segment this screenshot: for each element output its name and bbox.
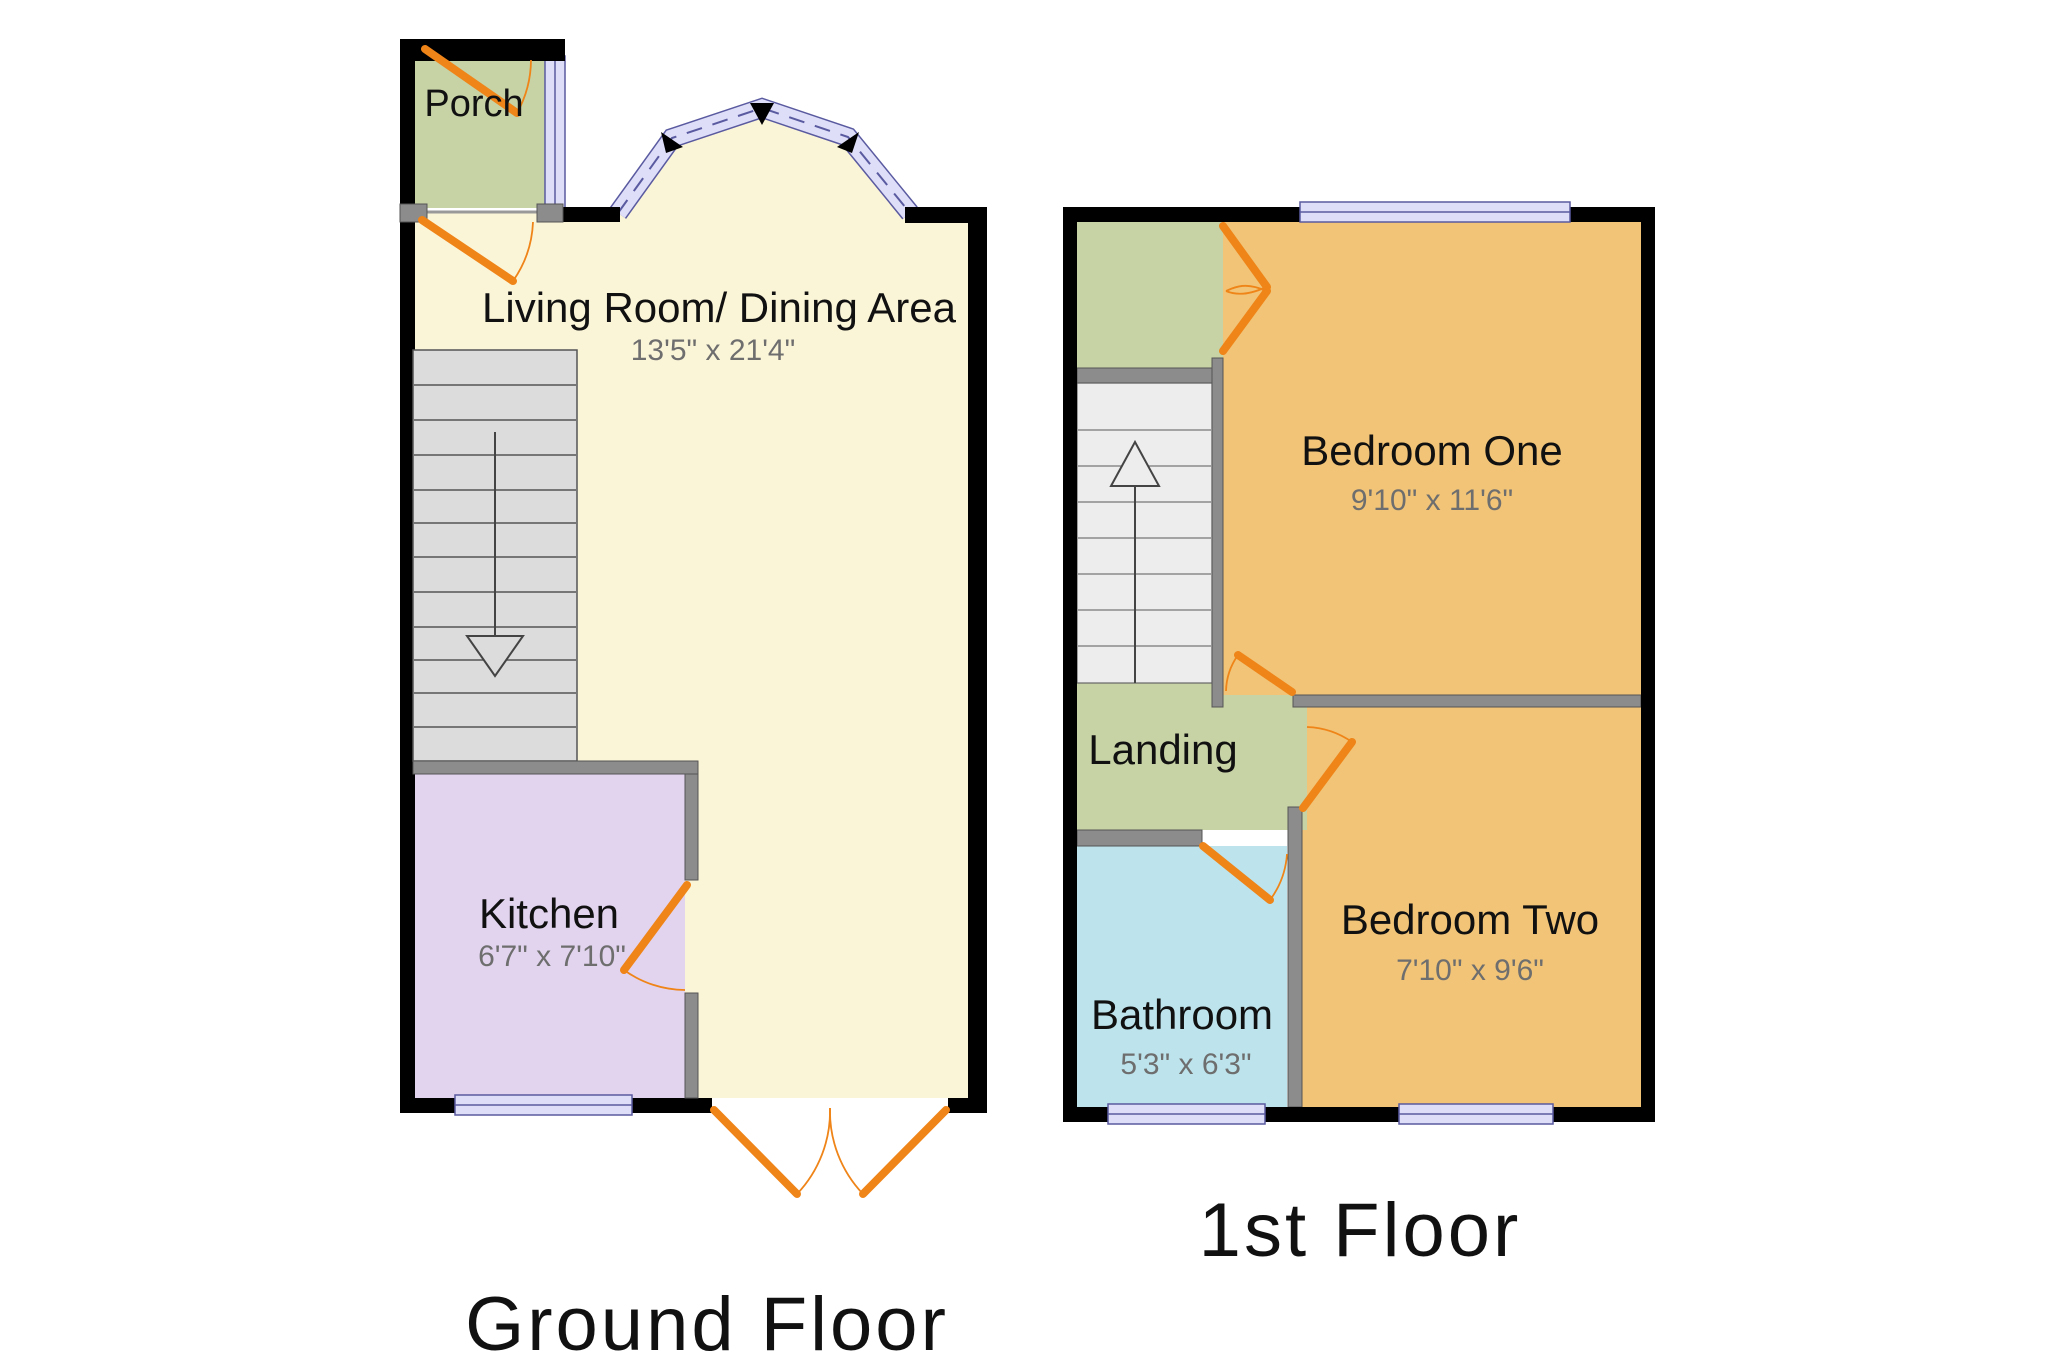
french-doors	[714, 1108, 946, 1194]
room-porch	[415, 56, 545, 208]
wall-right	[968, 207, 987, 1113]
wall-top	[1063, 207, 1300, 222]
first-floor-plan: Bedroom One 9'10" x 11'6" Bedroom Two 7'…	[1063, 202, 1655, 1273]
kitchen-top-wall	[413, 761, 698, 774]
porch-window	[545, 56, 565, 208]
kitchen-right-wall	[685, 774, 698, 880]
bedroom-two-window	[1399, 1104, 1553, 1124]
kitchen-window	[455, 1095, 632, 1115]
wall-left	[1063, 207, 1077, 1122]
bathroom-window	[1108, 1104, 1265, 1124]
kitchen-dimensions: 6'7" x 7'10"	[478, 940, 626, 973]
wall-right	[1641, 207, 1655, 1122]
stairs-ground	[413, 350, 577, 761]
wall-bottom	[1063, 1107, 1108, 1122]
stairs-first	[1077, 383, 1212, 683]
landing-bathroom-wall	[1077, 830, 1202, 846]
bathroom-dimensions: 5'3" x 6'3"	[1120, 1048, 1251, 1081]
kitchen-label: Kitchen	[479, 890, 619, 937]
bedroom-divider-wall	[1293, 695, 1641, 707]
living-room-dimensions: 13'5" x 21'4"	[631, 334, 796, 367]
bedroom-one-dimensions: 9'10" x 11'6"	[1351, 484, 1513, 517]
wall-bottom	[948, 1098, 987, 1113]
wall-top-left-of-bay	[560, 207, 620, 222]
kitchen-right-wall	[685, 993, 698, 1098]
bedroom-two-label: Bedroom Two	[1341, 896, 1599, 943]
stairs-side-wall	[1212, 358, 1223, 707]
closet-area	[1077, 222, 1223, 368]
living-room-label: Living Room/ Dining Area	[482, 284, 957, 331]
bedroom-two-dimensions: 7'10" x 9'6"	[1396, 954, 1544, 987]
ground-floor-plan: Porch Living Room/ Dining Area 13'5" x 2…	[400, 39, 987, 1364]
wall-bottom	[400, 1098, 455, 1113]
bedroom-one-label: Bedroom One	[1301, 427, 1562, 474]
first-floor-caption: 1st Floor	[1199, 1188, 1522, 1273]
porch-label: Porch	[424, 83, 523, 125]
wall-bottom	[632, 1098, 712, 1113]
wall-bottom	[1553, 1107, 1655, 1122]
landing-label: Landing	[1088, 726, 1237, 773]
wall-bottom	[1265, 1107, 1399, 1122]
floorplan-canvas: Porch Living Room/ Dining Area 13'5" x 2…	[0, 0, 2048, 1364]
bedroom-one-window	[1300, 202, 1570, 222]
bathroom-label: Bathroom	[1091, 991, 1273, 1038]
ground-floor-caption: Ground Floor	[465, 1282, 949, 1364]
closet-bottom-wall	[1077, 368, 1213, 383]
bathroom-bedroom-wall	[1288, 807, 1302, 1107]
